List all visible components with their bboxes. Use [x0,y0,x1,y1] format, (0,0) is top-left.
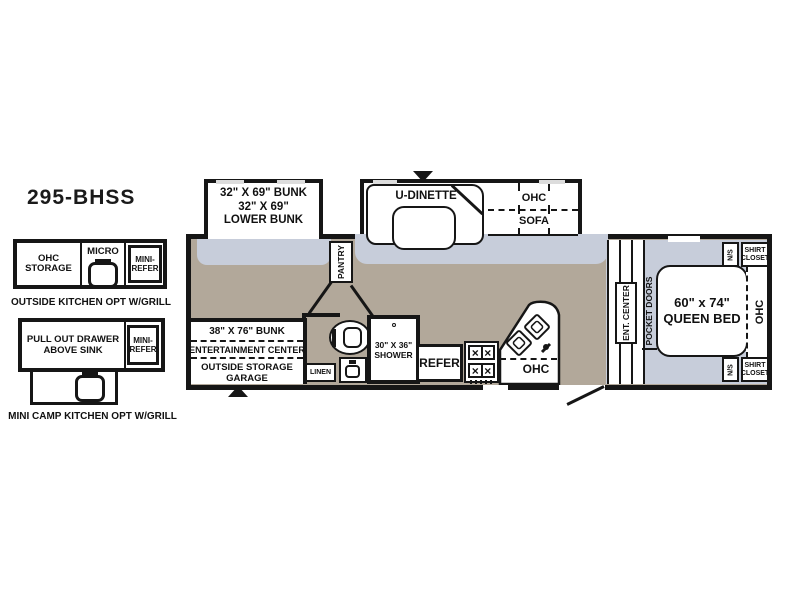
nightstand: N/S [722,357,739,382]
bunk-slide: 32" X 69" BUNK 32" X 69" LOWER BUNK [204,179,323,240]
slide-marker-icon [413,171,433,182]
divider [124,243,126,285]
garage-marker-icon [228,386,248,397]
bed-size-label: 60" x 74" [674,295,730,311]
nightstand-label: N/S [727,364,734,376]
bath-wall [302,313,340,317]
mini-camp-kitchen-option: PULL OUT DRAWER ABOVE SINK MINI-REFER [18,318,165,372]
shirt-closet-label: SHIRT CLOSET [741,247,769,263]
bath-sink [339,357,367,383]
shower: 30" X 36" SHOWER [367,315,420,384]
pocket-door-track [642,348,657,350]
kitchen-ohc-label: OHC [516,361,556,377]
bunk-line1: 32" X 69" BUNK [208,187,319,201]
toilet-tank [332,329,336,347]
linen-label: LINEN [310,369,331,376]
mini-refer-box: MINI-REFER [127,325,159,365]
window [668,236,700,242]
window [216,180,244,184]
bedroom-ohc-label: OHC [754,300,766,324]
sofa-ohc-outline [488,209,578,211]
drain-icon [392,323,396,327]
grill-icon [88,262,118,288]
outside-kitchen-option: OHC STORAGE MICRO MINI-REFER [13,239,167,289]
model-title: 295-BHSS [27,186,135,210]
burners-bottom: ×× [468,363,495,378]
window [373,180,397,184]
shower-label: 30" X 36" SHOWER [371,340,416,360]
mini-camp-kitchen-caption: MINI CAMP KITCHEN OPT W/GRILL [5,409,180,423]
bedroom-ent-center: ENT. CENTER [615,282,637,344]
burners-top: ×× [468,345,495,360]
sofa-label: SOFA [516,214,552,228]
faucet-icon [345,365,360,378]
dinette-label: U-DINETTE [378,189,474,203]
bunk-slide-label: 32" X 69" BUNK 32" X 69" LOWER BUNK [208,187,319,228]
pull-out-drawer-label: PULL OUT DRAWER ABOVE SINK [24,322,122,368]
window [483,385,508,391]
rear-bunk-label: 38" X 76" BUNK [191,322,303,340]
burner-icon: × [470,347,481,358]
window [539,180,565,184]
slide-floor-band [197,239,331,265]
bed-label: 60" x 74" QUEEN BED [658,267,746,355]
shirt-closet: SHIRT CLOSET [741,242,769,267]
nightstand: N/S [722,242,739,267]
kitchen-ohc-outline [500,358,557,360]
micro-label: MICRO [82,245,124,257]
divider [124,322,126,368]
nightstand-label: N/S [727,249,734,261]
queen-bed: 60" x 74" QUEEN BED [656,265,748,357]
bed-type-label: QUEEN BED [663,311,740,327]
outside-kitchen-caption: OUTSIDE KITCHEN OPT W/GRILL [5,295,177,309]
shirt-closet: SHIRT CLOSET [741,357,769,382]
grill-icon [75,375,105,402]
refer-label: REFER [419,356,460,370]
entertainment-center-label: ENTERTAINMENT CENTER [191,340,303,359]
mini-refer-label: MINI-REFER [131,255,159,273]
ohc-storage-label: OHC STORAGE [17,243,80,285]
range-vent [470,380,493,384]
shirt-closet-label: SHIRT CLOSET [741,362,769,378]
ent-center-unit: 38" X 76" BUNK ENTERTAINMENT CENTER OUTS… [191,318,307,384]
floorplan-page: 295-BHSS OHC STORAGE MICRO MINI-REFER OU… [0,0,800,600]
pantry-label: PANTRY [336,245,346,279]
dinette-table [392,206,456,250]
bedroom-ohc: OHC [746,266,767,358]
ent-center-label: ENT. CENTER [621,285,631,341]
pantry: PANTRY [329,241,353,283]
burner-icon: × [481,347,494,358]
outside-storage-label: OUTSIDE STORAGE GARAGE [191,359,303,386]
linen-cabinet: LINEN [305,363,336,382]
bunk-line3: LOWER BUNK [208,214,319,228]
mini-refer-box: MINI-REFER [128,245,162,283]
sofa: OHC SOFA [488,183,578,236]
sofa-ohc-label: OHC [516,191,552,205]
pocket-doors-label: POCKET DOORS [644,277,654,346]
faucet-base [543,344,549,350]
faucet-handle [349,360,356,364]
bunk-line2: 32" X 69" [208,201,319,215]
refrigerator: REFER [416,344,463,382]
burner-icon: × [481,365,494,376]
burner-icon: × [470,365,481,376]
toilet-bowl [343,327,362,348]
mini-refer-label: MINI-REFER [129,336,156,354]
window [277,180,305,184]
